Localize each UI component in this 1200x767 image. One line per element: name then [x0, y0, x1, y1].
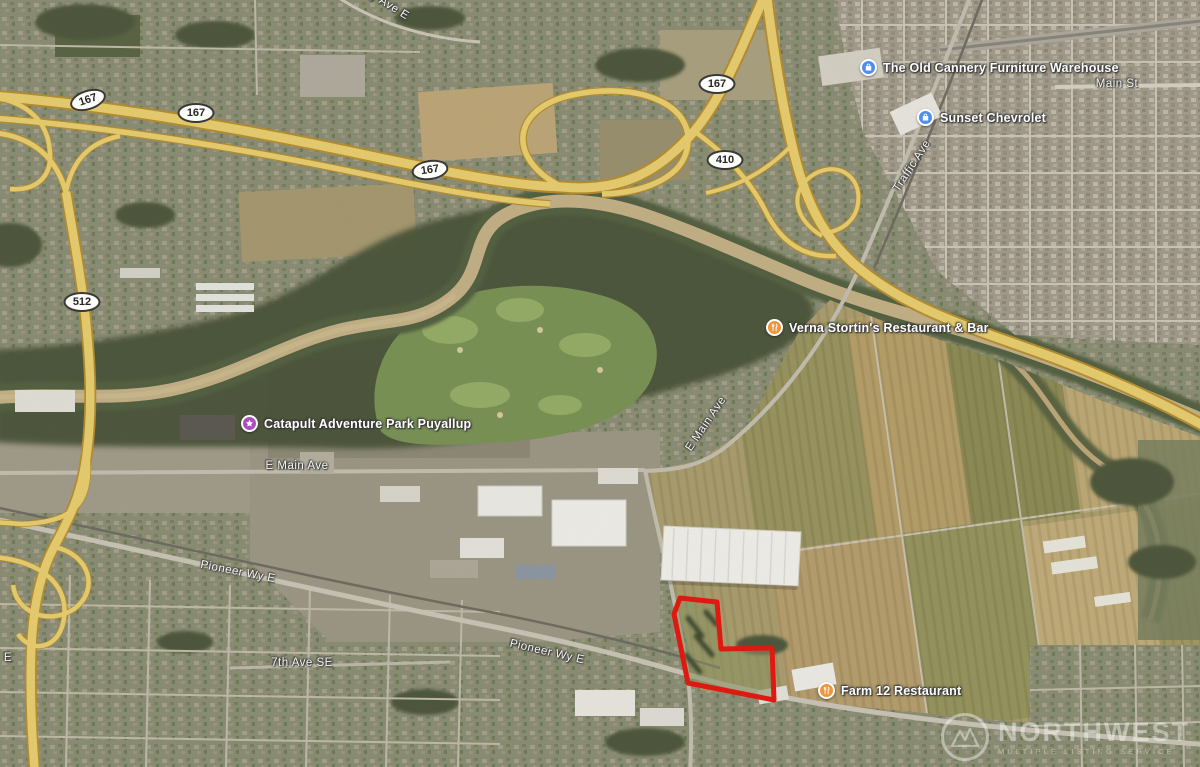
poi-label[interactable]: Farm 12 Restaurant: [841, 684, 961, 698]
poi-label[interactable]: The Old Cannery Furniture Warehouse: [883, 61, 1119, 75]
route-shield-512: 512: [64, 292, 101, 312]
satellite-map[interactable]: 167 167 167 167 410 512 E Main Ave E Mai…: [0, 0, 1200, 767]
route-shield-167: 167: [178, 103, 215, 123]
street-label-partial-e: E: [4, 652, 12, 664]
poi-sunset-chevrolet[interactable]: Sunset Chevrolet: [917, 109, 1046, 126]
shopping-pin-icon[interactable]: [917, 109, 934, 126]
route-shield-410: 410: [707, 150, 744, 170]
poi-catapult-adventure-park[interactable]: Catapult Adventure Park Puyallup: [241, 415, 471, 432]
street-label-main-st: Main St: [1096, 78, 1139, 90]
poi-old-cannery[interactable]: The Old Cannery Furniture Warehouse: [860, 59, 1119, 76]
poi-farm-12[interactable]: Farm 12 Restaurant: [818, 682, 961, 699]
poi-label[interactable]: Verna Stortin's Restaurant & Bar: [789, 321, 989, 335]
poi-verna-stortins[interactable]: Verna Stortin's Restaurant & Bar: [766, 319, 989, 336]
street-label-e-main-ave: E Main Ave: [266, 460, 329, 472]
poi-label[interactable]: Sunset Chevrolet: [940, 111, 1046, 125]
route-shield-167: 167: [699, 74, 736, 94]
shopping-pin-icon[interactable]: [860, 59, 877, 76]
poi-label[interactable]: Catapult Adventure Park Puyallup: [264, 417, 471, 431]
restaurant-pin-icon[interactable]: [766, 319, 783, 336]
street-label-7th-ave-se: 7th Ave SE: [271, 657, 333, 669]
attraction-pin-icon[interactable]: [241, 415, 258, 432]
restaurant-pin-icon[interactable]: [818, 682, 835, 699]
